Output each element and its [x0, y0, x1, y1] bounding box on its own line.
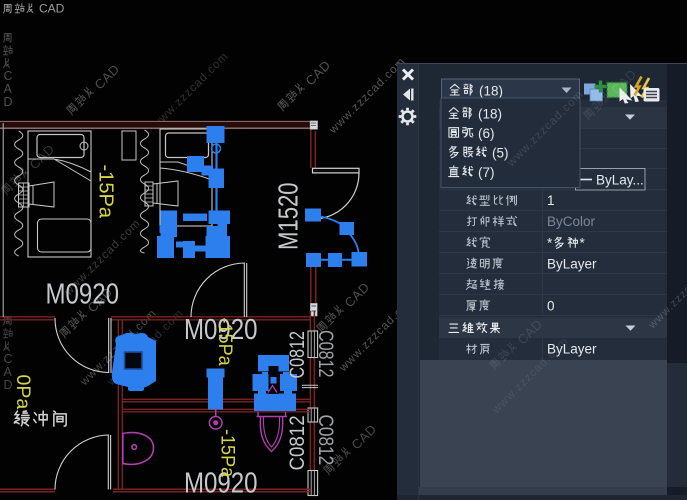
svg-text:C0812: C0812 — [313, 415, 337, 466]
svg-text:A: A — [4, 365, 13, 379]
svg-text:D: D — [4, 95, 13, 109]
svg-text:D: D — [4, 378, 13, 392]
svg-text:CAD: CAD — [39, 2, 65, 16]
svg-text:-15Pa: -15Pa — [217, 429, 239, 478]
svg-text:ByLay...: ByLay... — [596, 173, 644, 188]
svg-text:0: 0 — [547, 299, 555, 314]
svg-text:*: * — [547, 236, 553, 251]
svg-text:M1520: M1520 — [273, 182, 304, 250]
svg-text:-15Pa: -15Pa — [215, 318, 237, 367]
svg-text:ByLayer: ByLayer — [547, 257, 597, 272]
svg-text:C0812: C0812 — [286, 331, 310, 379]
svg-text:0Pa: 0Pa — [12, 375, 34, 410]
svg-text:C0812: C0812 — [313, 330, 337, 378]
svg-text:*: * — [580, 236, 586, 251]
svg-text:ByColor: ByColor — [547, 214, 596, 229]
svg-text:M0920: M0920 — [46, 277, 120, 310]
svg-text:-15Pa: -15Pa — [94, 165, 116, 219]
svg-text:(18): (18) — [478, 107, 502, 122]
svg-text:(7): (7) — [478, 165, 495, 180]
svg-text:(5): (5) — [492, 146, 509, 161]
svg-text:(6): (6) — [478, 126, 495, 141]
svg-text:C0812: C0812 — [286, 415, 309, 470]
svg-text:A: A — [4, 82, 13, 96]
svg-text:1: 1 — [547, 193, 555, 208]
svg-text:(18): (18) — [479, 83, 503, 98]
